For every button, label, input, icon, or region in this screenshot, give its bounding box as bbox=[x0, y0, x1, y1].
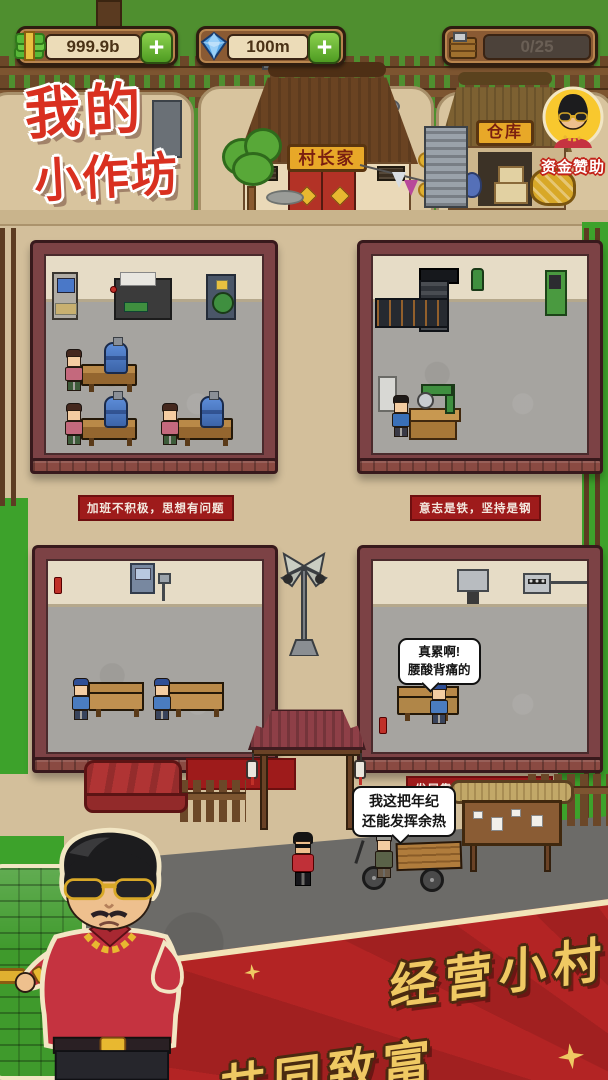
worker-male bbox=[152, 677, 172, 723]
water-jug bbox=[104, 342, 128, 374]
workshop-room-top-right[interactable] bbox=[357, 240, 603, 474]
water-jug bbox=[200, 396, 224, 428]
power-panel bbox=[130, 563, 155, 594]
mini-boss-character bbox=[290, 832, 316, 890]
bench bbox=[168, 689, 224, 711]
workshop-room-top-left[interactable] bbox=[30, 240, 278, 474]
picket-fence bbox=[180, 780, 246, 822]
grinder-machine bbox=[457, 569, 489, 592]
slogan-banner-1: 加班不积极，思想有问题 bbox=[78, 495, 234, 521]
boiler-machine bbox=[206, 274, 236, 320]
money-value: 999.9b bbox=[45, 34, 141, 60]
worker-female bbox=[64, 402, 84, 448]
lantern bbox=[354, 760, 366, 779]
speech-bubble-tired-worker: 真累啊! 腰酸背痛的 bbox=[398, 638, 481, 685]
worker-male bbox=[71, 677, 91, 723]
stone-path bbox=[266, 190, 304, 205]
fire-extinguisher bbox=[379, 717, 387, 734]
robotic-arm bbox=[445, 384, 455, 414]
market-awning bbox=[84, 760, 182, 800]
cash-icon bbox=[12, 30, 48, 64]
conveyor-machine bbox=[375, 298, 449, 328]
slogan-banner-2: 意志是铁，坚持是钢 bbox=[410, 495, 541, 521]
green-bottle bbox=[471, 268, 484, 291]
sponsor-avatar-icon bbox=[542, 86, 604, 148]
worker-female bbox=[64, 348, 84, 394]
money-add-button[interactable]: + bbox=[140, 31, 173, 64]
warehouse-sign: 仓库 bbox=[476, 120, 534, 146]
worker-male bbox=[391, 394, 411, 440]
press-machine bbox=[114, 278, 172, 320]
stake-fence-left bbox=[0, 228, 20, 506]
gems-value: 100m bbox=[227, 34, 309, 60]
game-screen: 村长家 仓库 bbox=[0, 0, 608, 1080]
lantern bbox=[246, 760, 258, 779]
storage-value: 0/25 bbox=[483, 34, 591, 60]
chief-house-sign: 村长家 bbox=[287, 144, 367, 172]
green-machine bbox=[545, 270, 567, 316]
meter-box bbox=[158, 573, 171, 584]
sponsor-button[interactable]: 资金赞助 bbox=[538, 86, 608, 177]
crate-icon bbox=[446, 30, 480, 62]
computer-terminal-machine bbox=[52, 272, 78, 320]
boss-character bbox=[10, 824, 210, 1080]
fire-extinguisher bbox=[54, 577, 62, 594]
crate bbox=[494, 182, 528, 204]
tricycle-cart bbox=[396, 841, 463, 871]
old-man-character bbox=[374, 832, 398, 884]
worker-female bbox=[160, 402, 180, 448]
speech-bubble-old-man: 我这把年纪 还能发挥余热 bbox=[352, 786, 456, 837]
loudspeaker-pole bbox=[276, 552, 332, 656]
metal-cabinet bbox=[424, 126, 468, 208]
game-logo: 我的 小作坊 bbox=[22, 62, 179, 212]
notice-board bbox=[462, 800, 562, 846]
diamond-icon bbox=[198, 30, 230, 62]
water-jug bbox=[104, 396, 128, 428]
workshop-room-bottom-left[interactable] bbox=[32, 545, 278, 773]
bench bbox=[397, 693, 459, 715]
grass-strip-left bbox=[0, 498, 28, 774]
wall-motor bbox=[523, 573, 551, 594]
sponsor-label: 资金赞助 bbox=[538, 156, 608, 177]
bench bbox=[88, 689, 144, 711]
gems-add-button[interactable]: + bbox=[308, 31, 341, 64]
